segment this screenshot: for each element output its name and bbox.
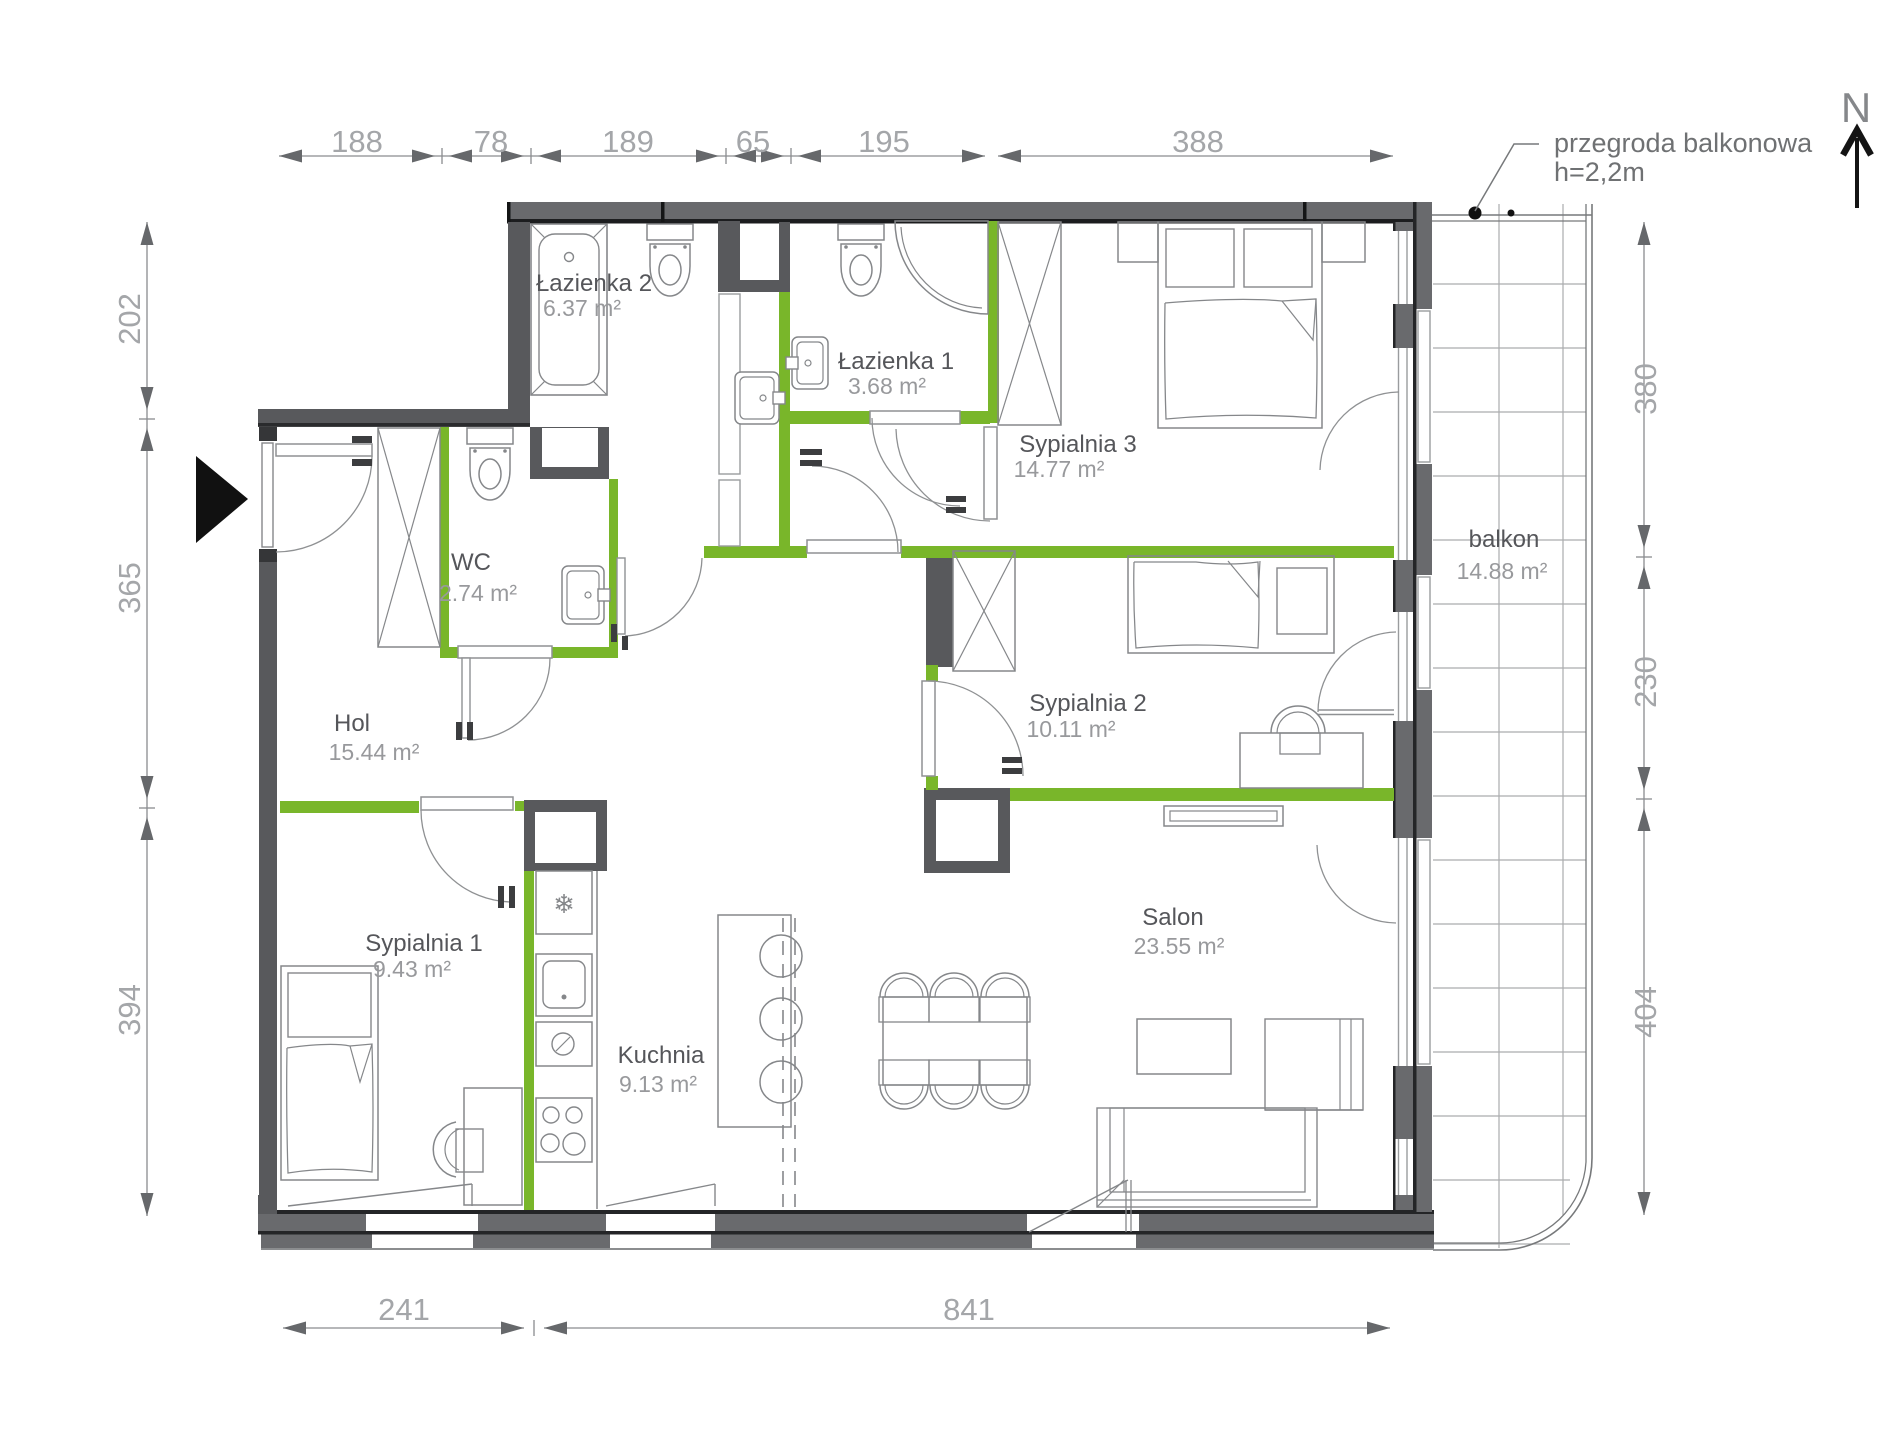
svg-text:3.68 m²: 3.68 m² <box>848 373 926 399</box>
svg-text:15.44 m²: 15.44 m² <box>329 739 420 765</box>
svg-text:przegroda balkonowa: przegroda balkonowa <box>1554 128 1813 158</box>
svg-text:9.13 m²: 9.13 m² <box>619 1071 697 1097</box>
svg-text:Hol: Hol <box>334 710 370 737</box>
svg-text:65: 65 <box>736 124 770 159</box>
svg-text:78: 78 <box>474 124 508 159</box>
svg-text:balkon: balkon <box>1469 526 1540 553</box>
svg-text:195: 195 <box>858 124 910 159</box>
svg-text:WC: WC <box>451 549 491 576</box>
svg-text:9.43 m²: 9.43 m² <box>373 956 451 982</box>
svg-text:Łazienka 2: Łazienka 2 <box>536 270 652 297</box>
svg-text:Kuchnia: Kuchnia <box>618 1042 705 1069</box>
svg-text:241: 241 <box>378 1292 430 1327</box>
svg-text:Sypialnia 1: Sypialnia 1 <box>365 930 482 957</box>
svg-text:404: 404 <box>1628 986 1663 1038</box>
svg-text:2.74 m²: 2.74 m² <box>439 580 517 606</box>
svg-text:❄: ❄ <box>553 889 575 919</box>
svg-text:Łazienka 1: Łazienka 1 <box>838 348 954 375</box>
svg-text:h=2,2m: h=2,2m <box>1554 157 1645 187</box>
svg-text:189: 189 <box>602 124 654 159</box>
svg-text:188: 188 <box>331 124 383 159</box>
svg-text:380: 380 <box>1628 363 1663 415</box>
svg-text:6.37 m²: 6.37 m² <box>543 295 621 321</box>
svg-text:394: 394 <box>112 984 147 1036</box>
svg-text:202: 202 <box>112 293 147 345</box>
svg-text:230: 230 <box>1628 656 1663 708</box>
svg-text:Salon: Salon <box>1142 904 1203 931</box>
svg-text:N: N <box>1841 84 1871 131</box>
svg-text:10.11 m²: 10.11 m² <box>1026 716 1115 742</box>
svg-text:14.88 m²: 14.88 m² <box>1457 558 1548 584</box>
svg-text:Sypialnia 3: Sypialnia 3 <box>1019 431 1136 458</box>
svg-text:388: 388 <box>1172 124 1224 159</box>
svg-text:14.77 m²: 14.77 m² <box>1014 456 1105 482</box>
svg-text:365: 365 <box>112 562 147 614</box>
svg-text:841: 841 <box>943 1292 995 1327</box>
svg-text:23.55 m²: 23.55 m² <box>1134 933 1225 959</box>
svg-text:Sypialnia 2: Sypialnia 2 <box>1029 690 1146 717</box>
